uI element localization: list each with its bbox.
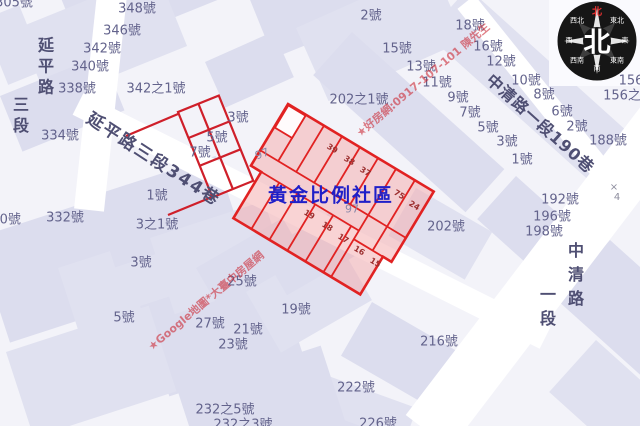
watermark-text: ★好房網:0917-107-101 陳先生 — [354, 21, 491, 139]
map-canvas[interactable]: 延平路三段延平路三段344巷中清路一段190巷中清路一段黃金比例社區305號34… — [0, 0, 640, 426]
house-number-label: 7號 — [189, 147, 210, 160]
house-number-label: 27號 — [195, 318, 225, 331]
house-number-label: 192號 — [541, 194, 579, 207]
house-number-label: 342之1號 — [126, 83, 185, 96]
parcel-number: 18 — [320, 221, 334, 234]
compass-ring-s: 南 — [594, 66, 601, 73]
house-number-label: 332號 — [46, 212, 84, 225]
house-number-label: 156 — [619, 75, 640, 88]
house-number-label: 12號 — [486, 56, 516, 69]
house-number-label: 305號 — [0, 0, 33, 10]
house-number-label: 1號 — [511, 154, 532, 167]
house-number-label: 7號 — [459, 107, 480, 120]
house-number-label: 3號 — [227, 112, 248, 125]
house-number-label: 340號 — [71, 61, 109, 74]
compass-north-red: 北 — [592, 8, 602, 18]
house-number-label: 222號 — [337, 382, 375, 395]
house-number-label: 1號 — [146, 190, 167, 203]
house-number-label: 232之5號 — [195, 404, 254, 417]
house-number-label: 5號 — [113, 312, 134, 325]
house-number-label: 348號 — [118, 3, 156, 16]
house-number-label: 19號 — [281, 304, 311, 317]
street-yanping-section-3: 三段 — [11, 96, 27, 138]
house-number-label: 97 — [254, 146, 271, 161]
street-zhongqing-section-1: 一段 — [538, 286, 554, 334]
house-number-label: 226號 — [359, 418, 397, 426]
community-name: 黃金比例社區 — [268, 187, 394, 206]
compass-ring-nw: 西北 — [570, 18, 584, 25]
house-number-label: 338號 — [58, 83, 96, 96]
house-number-label: 5號 — [477, 122, 498, 135]
house-number-label: 6號 — [551, 106, 572, 119]
parcel-number: 37 — [358, 166, 372, 179]
house-number-label: 23號 — [218, 339, 248, 352]
house-number-label: 2號 — [360, 10, 381, 23]
compass-ring-ne: 東北 — [610, 18, 624, 25]
street-zhongqing-road: 中清路 — [566, 242, 582, 314]
house-number-label: 216號 — [420, 336, 458, 349]
house-number-label: 10號 — [511, 75, 541, 88]
house-number-label: 330號 — [0, 214, 21, 227]
house-number-label: 202號 — [427, 221, 465, 234]
compass-ring-e: 東 — [622, 38, 629, 45]
house-number-label: 188號 — [589, 135, 627, 148]
parcel-number: 39 — [325, 143, 339, 156]
parcel-number: 19 — [302, 209, 316, 222]
parcel-number: 24 — [407, 200, 421, 213]
house-number-label: 196號 — [533, 211, 571, 224]
house-number-label: 334號 — [41, 130, 79, 143]
parcel-number: 15 — [368, 257, 382, 270]
house-number-label: 3號 — [496, 136, 517, 149]
labels-layer: 延平路三段延平路三段344巷中清路一段190巷中清路一段黃金比例社區305號34… — [0, 0, 640, 426]
compass-ring-se: 東南 — [610, 58, 624, 65]
house-number-label: 3之1號 — [136, 219, 179, 232]
parcel-number: 38 — [342, 155, 356, 168]
street-yanping-road: 延平路 — [36, 37, 52, 100]
house-number-label: 202之1號 — [329, 94, 388, 107]
house-number-label: 3號 — [130, 257, 151, 270]
house-number-label: 198號 — [525, 226, 563, 239]
house-number-label: 346號 — [103, 25, 141, 38]
house-number-label: 15號 — [382, 43, 412, 56]
parcel-number: 16 — [352, 245, 366, 258]
house-number-label: 2號 — [566, 121, 587, 134]
compass-ring-sw: 西南 — [570, 58, 584, 65]
house-number-label: 97 — [345, 204, 359, 215]
compass-ring-w: 西 — [566, 38, 573, 45]
house-number-label: 156之 — [603, 90, 640, 103]
map-mark-4: 4 — [614, 193, 620, 203]
parcel-number: 75 — [392, 189, 406, 202]
house-number-label: 232之3號 — [213, 419, 272, 426]
house-number-label: 5號 — [206, 132, 227, 145]
house-number-label: 342號 — [83, 43, 121, 56]
parcel-number: 17 — [336, 233, 350, 246]
compass-north-center: 北 — [584, 30, 611, 57]
house-number-label: 9號 — [447, 92, 468, 105]
house-number-label: 21號 — [233, 324, 263, 337]
house-number-label: 8號 — [533, 89, 554, 102]
